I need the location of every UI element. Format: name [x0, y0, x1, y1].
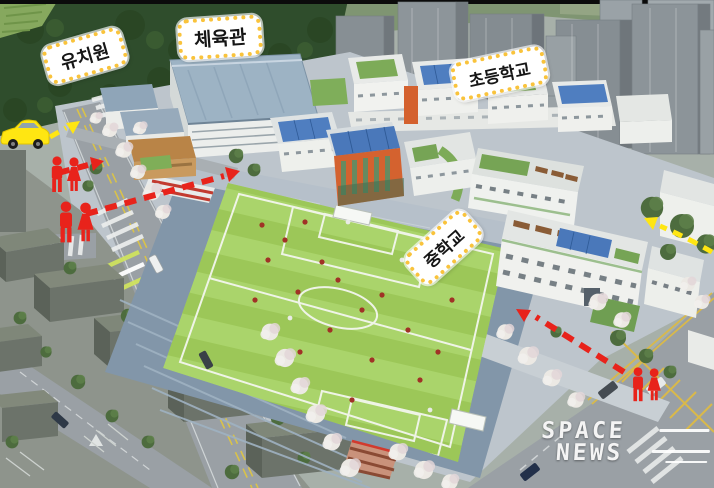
watermark-speed-line — [652, 450, 710, 453]
watermark-speed-line — [665, 461, 707, 463]
campus-rendering: 유치원 체육관 초등학교 중학교 SPACE NEWS — [0, 0, 714, 488]
watermark-space-news: SPACE NEWS — [538, 420, 714, 482]
watermark-speed-line — [659, 429, 709, 432]
rendering-canvas — [0, 0, 714, 488]
callout-gym: 체육관 — [177, 14, 264, 61]
orange-hall-building — [326, 122, 404, 206]
left-edge-building — [0, 150, 26, 232]
